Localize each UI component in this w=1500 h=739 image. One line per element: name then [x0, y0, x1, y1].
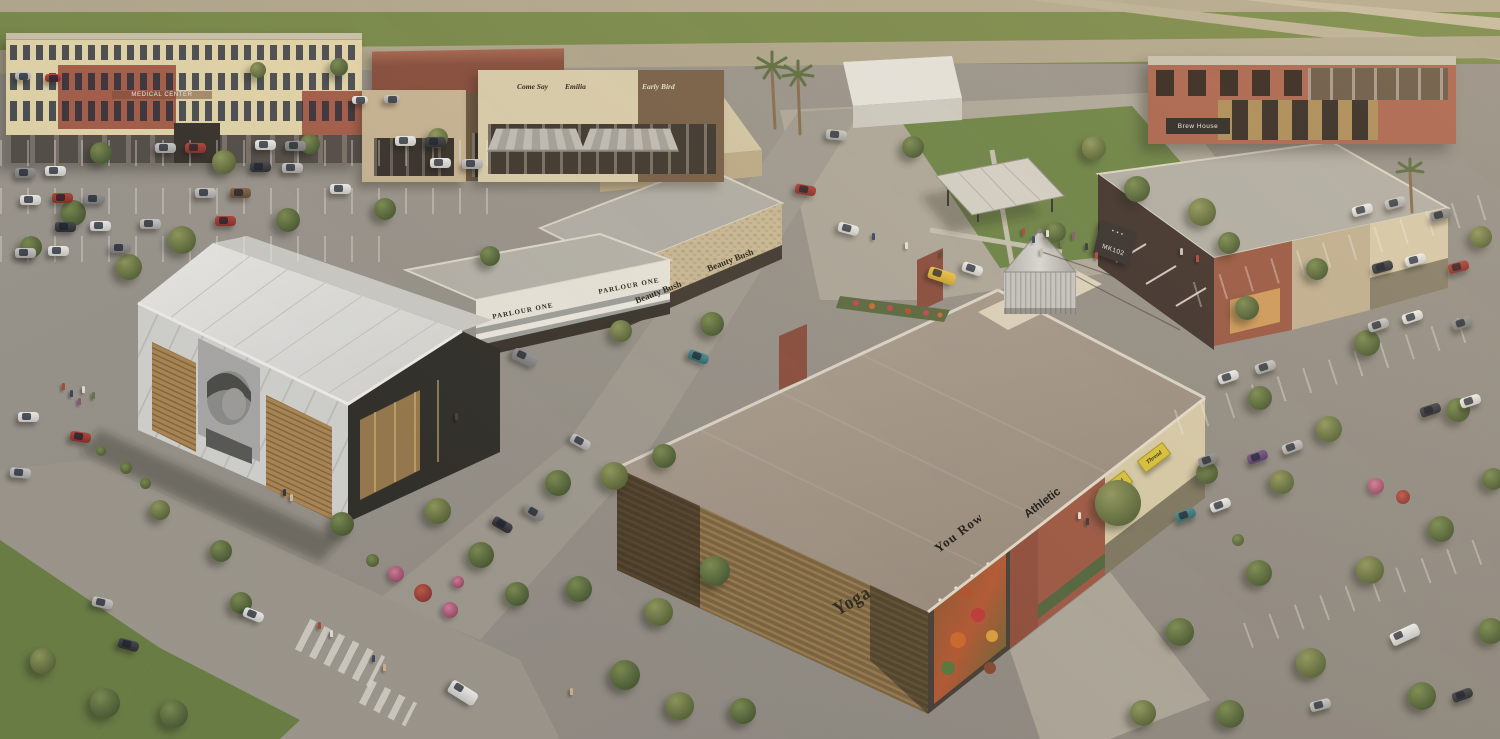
flower-bush — [1368, 478, 1384, 494]
tree — [212, 150, 236, 174]
tree — [1482, 468, 1500, 490]
window-row — [10, 73, 358, 90]
person — [372, 655, 375, 662]
car — [55, 222, 76, 232]
person — [1046, 230, 1049, 237]
person — [1085, 243, 1088, 250]
tree — [1296, 648, 1326, 678]
person — [905, 242, 908, 249]
car — [352, 96, 368, 104]
person — [1022, 228, 1025, 235]
person — [570, 688, 573, 695]
open-hall — [1218, 100, 1378, 140]
car — [430, 158, 451, 168]
car — [195, 188, 216, 198]
tree — [1124, 176, 1150, 202]
car — [330, 184, 351, 194]
car — [155, 143, 176, 153]
person — [1078, 512, 1081, 519]
tree — [1354, 330, 1380, 356]
person — [290, 494, 293, 501]
person — [1180, 248, 1183, 255]
window-row — [10, 45, 358, 60]
tree — [90, 142, 112, 164]
tree — [645, 598, 673, 626]
car — [250, 162, 271, 172]
tree — [566, 576, 592, 602]
upper-windows — [1156, 70, 1306, 96]
person — [1032, 236, 1035, 243]
flower-bush — [1396, 490, 1410, 504]
car — [462, 159, 483, 169]
car — [45, 74, 61, 82]
person — [330, 630, 333, 637]
tree — [330, 58, 348, 76]
tree — [700, 312, 724, 336]
tree — [116, 254, 142, 280]
tree — [468, 542, 494, 568]
car — [384, 95, 400, 103]
person — [318, 622, 321, 629]
small-white-building — [843, 56, 962, 128]
car — [282, 163, 303, 173]
window-row — [10, 101, 358, 121]
car — [15, 168, 36, 178]
person — [940, 250, 943, 257]
tree — [700, 556, 730, 586]
tree — [210, 540, 232, 562]
cream-shops — [478, 70, 724, 182]
tree — [666, 692, 694, 720]
tree — [730, 698, 756, 724]
person — [383, 664, 386, 671]
tree — [1218, 232, 1240, 254]
tree — [1248, 386, 1272, 410]
car — [15, 72, 31, 80]
tree — [1478, 618, 1500, 644]
person — [1095, 252, 1098, 259]
tree — [1095, 480, 1141, 526]
car — [395, 136, 416, 146]
tree — [160, 700, 188, 728]
person — [1196, 255, 1199, 262]
car — [52, 193, 73, 203]
car — [230, 188, 251, 198]
flower-bush — [442, 602, 458, 618]
tree — [1082, 136, 1106, 160]
tree — [902, 136, 924, 158]
flower-bush — [388, 566, 404, 582]
tree — [330, 512, 354, 536]
roof-terrace — [1308, 68, 1448, 100]
car — [20, 195, 41, 205]
shrub — [96, 446, 106, 456]
tree — [1130, 700, 1156, 726]
brew-house-sign: Brew House — [1166, 118, 1230, 134]
car — [84, 194, 105, 204]
brew-house-building: Brew House — [1148, 56, 1456, 144]
tree — [1216, 700, 1244, 728]
tree — [652, 444, 676, 468]
person — [78, 398, 81, 405]
tree — [374, 198, 396, 220]
tree — [1428, 516, 1454, 542]
car — [285, 141, 306, 151]
tree — [250, 62, 266, 78]
car — [140, 219, 161, 229]
tree — [1235, 296, 1259, 320]
tree — [276, 208, 300, 232]
car — [90, 221, 111, 231]
tree — [610, 660, 640, 690]
aerial-shopping-center-rendering: MEDICAL CENTER Come Say Emilia Early Bir… — [0, 0, 1500, 739]
car — [48, 246, 69, 256]
person — [1060, 240, 1063, 247]
person — [62, 383, 65, 390]
person — [283, 489, 286, 496]
person — [455, 413, 458, 420]
parapet — [1148, 56, 1456, 65]
person — [872, 233, 875, 240]
person — [70, 390, 73, 397]
gray-awning — [581, 129, 679, 152]
car — [10, 467, 32, 479]
tree — [1470, 226, 1492, 248]
shop-sign: Early Bird — [642, 83, 675, 91]
shrub — [366, 554, 379, 567]
tree — [1246, 560, 1272, 586]
car — [15, 248, 36, 258]
car — [255, 140, 276, 150]
tree — [425, 498, 451, 524]
flower-bush — [452, 576, 464, 588]
shop-sign: Come Say — [517, 83, 548, 91]
tree — [600, 462, 628, 490]
flower-bush — [414, 584, 432, 602]
car — [185, 143, 206, 153]
tree — [1356, 556, 1384, 584]
tree — [505, 582, 529, 606]
tree — [168, 226, 196, 254]
person — [82, 386, 85, 393]
person — [92, 392, 95, 399]
medical-center-sign: MEDICAL CENTER — [112, 91, 212, 99]
tree — [1306, 258, 1328, 280]
tree — [1270, 470, 1294, 494]
tree — [1046, 222, 1066, 242]
person — [1072, 232, 1075, 239]
tree — [1316, 416, 1342, 442]
tree — [480, 246, 500, 266]
car — [826, 129, 848, 141]
car — [425, 137, 446, 147]
car — [215, 216, 236, 226]
car — [45, 166, 66, 176]
shrub — [1232, 534, 1244, 546]
tree — [150, 500, 170, 520]
shrub — [140, 478, 151, 489]
shrub — [120, 462, 132, 474]
car — [18, 412, 39, 422]
tree — [90, 688, 120, 718]
person — [1040, 248, 1043, 255]
car — [110, 243, 131, 253]
tree — [545, 470, 571, 496]
person — [1086, 518, 1089, 525]
tree — [1166, 618, 1194, 646]
tree — [30, 648, 56, 674]
parapet — [6, 33, 362, 40]
shop-sign: Emilia — [565, 83, 586, 91]
tree — [1188, 198, 1216, 226]
tree — [1408, 682, 1436, 710]
tree — [610, 320, 632, 342]
